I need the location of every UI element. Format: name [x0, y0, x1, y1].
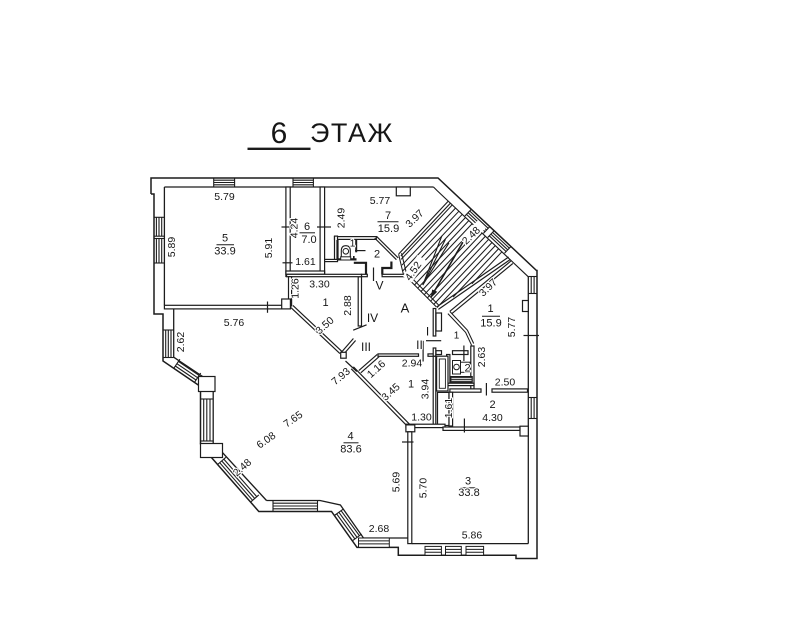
svg-text:2: 2: [464, 363, 470, 375]
svg-text:3: 3: [465, 476, 471, 488]
svg-text:33.9: 33.9: [214, 246, 235, 258]
svg-text:III: III: [361, 340, 371, 354]
svg-text:4: 4: [347, 431, 353, 443]
svg-text:5.77: 5.77: [370, 195, 391, 207]
svg-text:7: 7: [385, 210, 391, 222]
svg-text:2.49: 2.49: [336, 208, 348, 229]
svg-text:83.6: 83.6: [340, 444, 361, 456]
svg-text:1.61: 1.61: [443, 398, 455, 419]
svg-text:15.9: 15.9: [378, 223, 399, 235]
svg-text:5.86: 5.86: [462, 530, 483, 542]
svg-text:ЭТАЖ: ЭТАЖ: [310, 118, 394, 148]
svg-text:5.69: 5.69: [391, 472, 403, 493]
svg-text:7.0: 7.0: [301, 234, 316, 246]
svg-text:1: 1: [454, 331, 460, 342]
svg-text:1: 1: [322, 297, 328, 309]
svg-text:1: 1: [487, 303, 493, 315]
svg-text:3.30: 3.30: [309, 279, 330, 291]
svg-text:5.91: 5.91: [263, 238, 275, 259]
svg-text:6: 6: [271, 117, 288, 150]
svg-text:2.68: 2.68: [369, 523, 390, 535]
svg-text:2.62: 2.62: [175, 332, 187, 353]
svg-text:2.50: 2.50: [495, 377, 516, 389]
svg-text:1: 1: [350, 239, 356, 250]
svg-text:5.77: 5.77: [506, 317, 518, 338]
svg-text:1.26: 1.26: [290, 278, 302, 299]
svg-text:15.9: 15.9: [480, 318, 501, 330]
svg-text:2: 2: [489, 399, 495, 411]
svg-text:5.70: 5.70: [418, 478, 430, 499]
svg-text:A: A: [401, 301, 410, 316]
svg-text:3.94: 3.94: [420, 379, 432, 400]
svg-text:IV: IV: [367, 311, 378, 325]
svg-text:2.63: 2.63: [476, 347, 488, 368]
svg-text:1.30: 1.30: [411, 412, 432, 424]
svg-text:1.61: 1.61: [295, 256, 316, 268]
svg-text:4.30: 4.30: [482, 412, 503, 424]
svg-text:33.8: 33.8: [458, 487, 479, 499]
svg-text:1: 1: [408, 379, 414, 391]
svg-text:V: V: [375, 279, 383, 293]
svg-text:5.79: 5.79: [214, 191, 235, 203]
svg-text:I: I: [426, 325, 429, 339]
svg-text:4.24: 4.24: [289, 218, 301, 239]
svg-text:5.89: 5.89: [166, 237, 178, 258]
svg-text:2.94: 2.94: [402, 358, 423, 370]
svg-text:5: 5: [222, 233, 228, 245]
svg-text:6: 6: [304, 221, 310, 233]
svg-text:II: II: [416, 338, 423, 352]
svg-text:5.76: 5.76: [224, 317, 245, 329]
svg-text:2.88: 2.88: [342, 295, 354, 316]
svg-text:2: 2: [374, 249, 380, 261]
